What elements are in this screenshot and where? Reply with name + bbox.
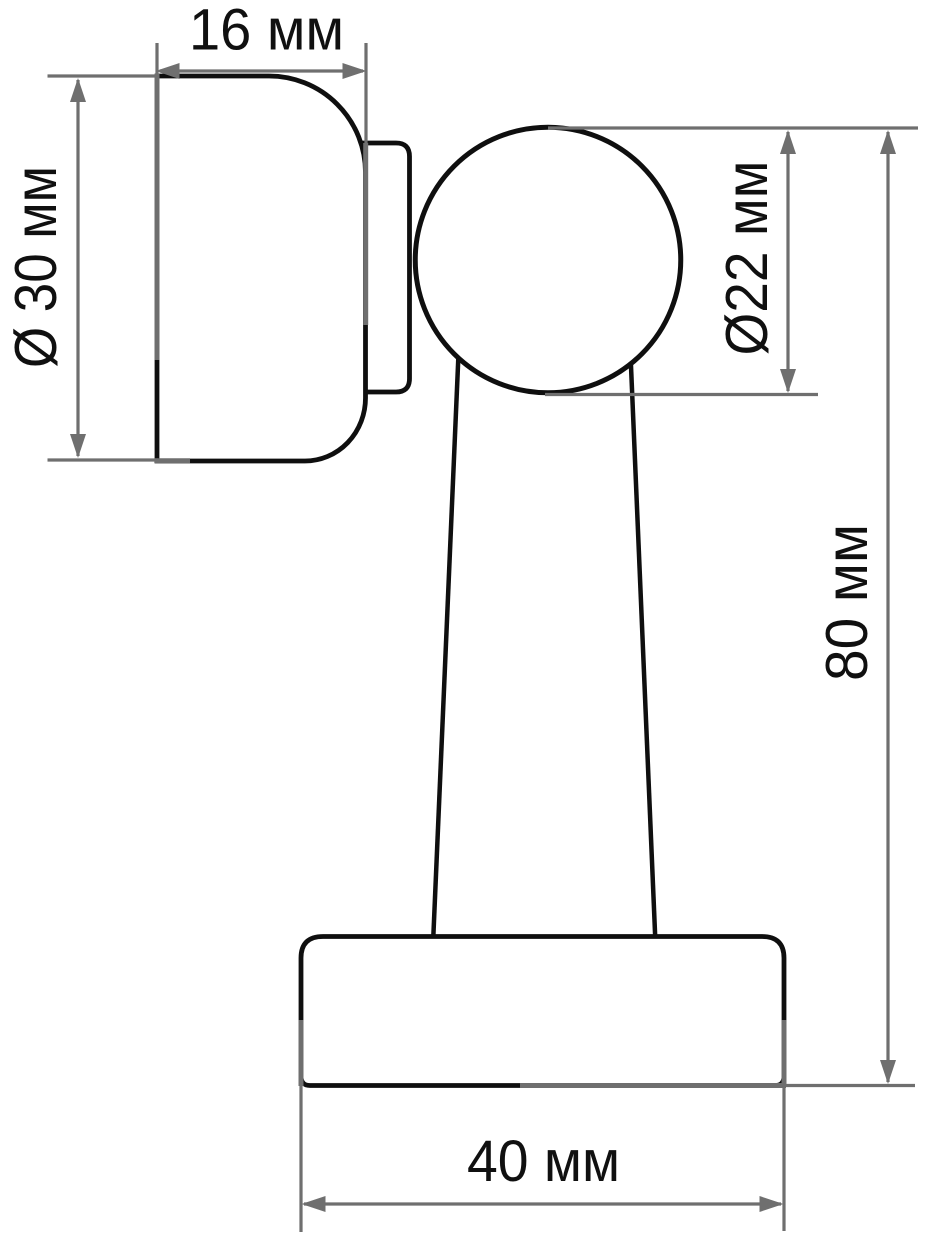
svg-text:Ø22 мм: Ø22 мм <box>713 161 780 356</box>
svg-text:Ø 30 мм: Ø 30 мм <box>2 166 69 368</box>
svg-text:16 мм: 16 мм <box>189 0 344 63</box>
svg-text:40 мм: 40 мм <box>467 1129 620 1194</box>
svg-text:80 мм: 80 мм <box>813 524 880 681</box>
